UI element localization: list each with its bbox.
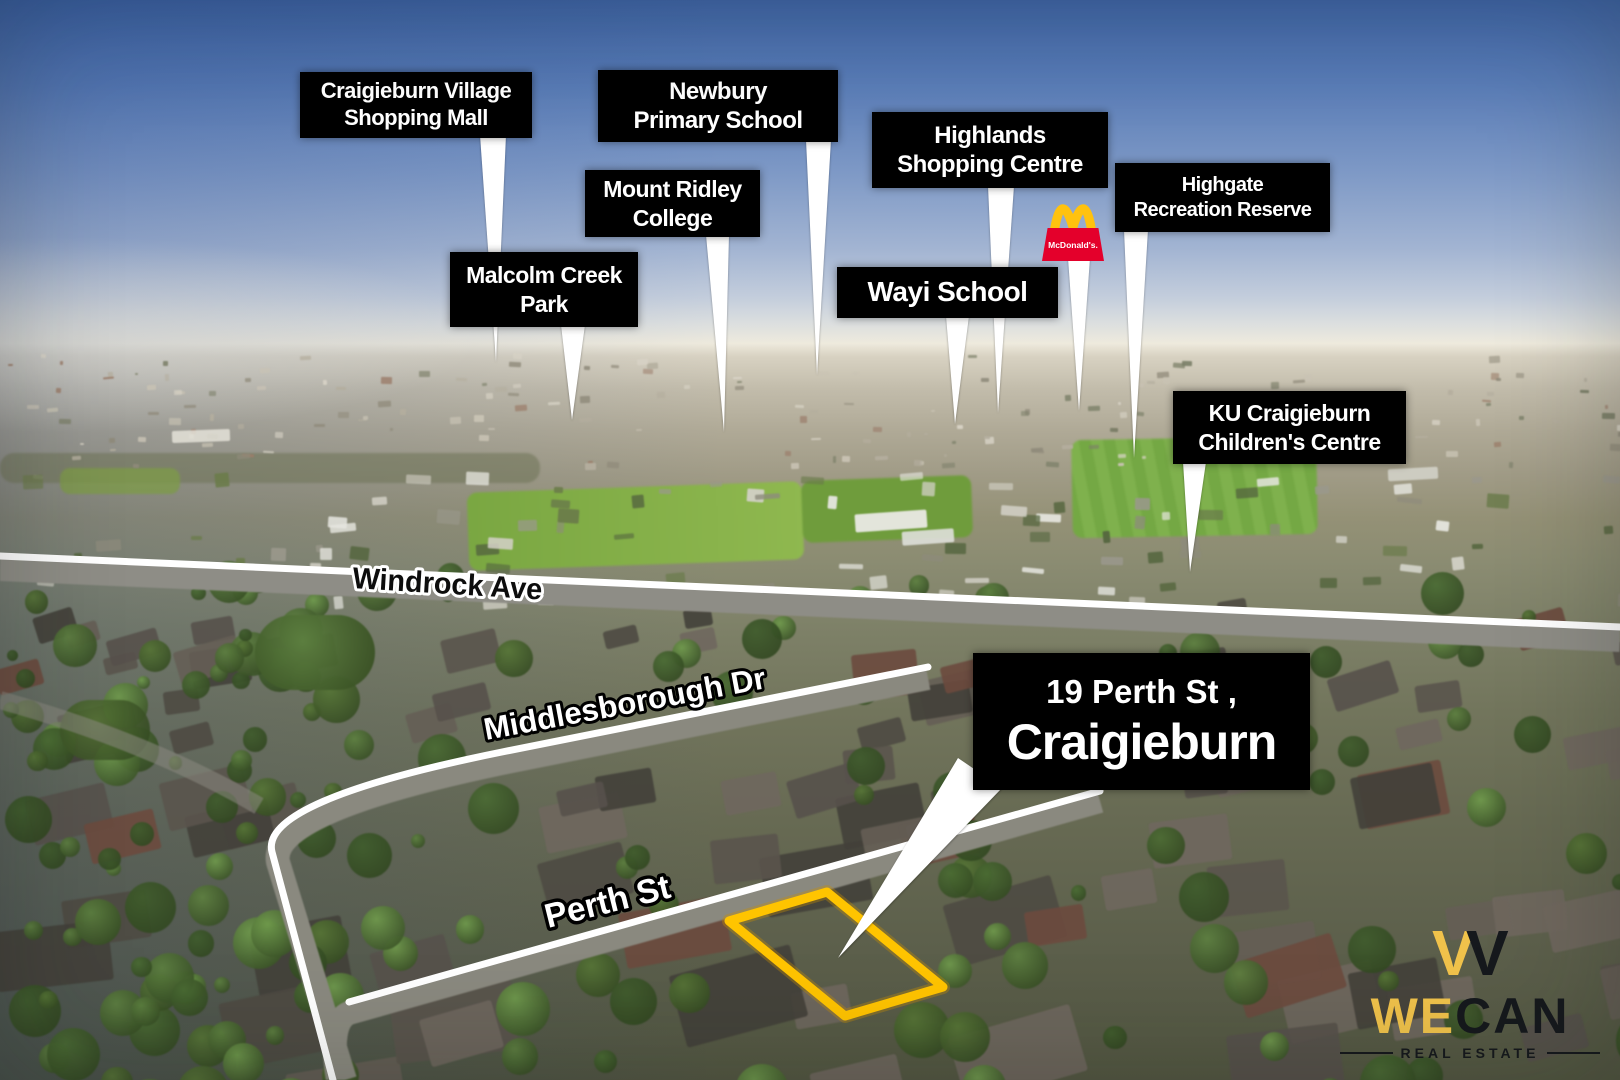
tagline-rule-left [1340,1052,1393,1054]
poi-line: KU Craigieburn [1209,399,1371,427]
poi-label-ku-craigieburn-childrens-centre: KU Craigieburn Children's Centre [1173,391,1406,464]
property-suburb: Craigieburn [1007,713,1277,771]
wecan-wordmark: WECAN [1340,991,1600,1041]
poi-line: Children's Centre [1198,428,1380,456]
property-address-label: 19 Perth St , Craigieburn [973,653,1310,790]
wedge-highgate [1124,230,1148,458]
poi-line: Highgate [1182,173,1264,197]
aerial-property-photo: Windrock Ave Middlesborough Dr Perth St … [0,0,1620,1080]
poi-line: Park [520,290,568,318]
poi-line: Mount Ridley [603,175,741,203]
poi-label-wayi-school: Wayi School [837,267,1058,318]
mcdonalds-sign-text: McDonald's. [1048,240,1098,250]
poi-label-craigieburn-village-shopping-mall: Craigieburn Village Shopping Mall [300,72,532,138]
wedge-craigieburn-village [480,135,506,362]
wedge-malcolm-creek [561,325,585,420]
wedge-mount-ridley [706,235,729,432]
poi-label-malcolm-creek-park: Malcolm Creek Park [450,252,638,327]
poi-line: Shopping Mall [344,105,488,132]
wecan-logo-mark-icon: V V [1432,921,1542,991]
logo-v-black: V [1466,921,1509,985]
poi-label-highlands-shopping-centre: Highlands Shopping Centre [872,112,1108,188]
wedge-newbury [806,140,831,375]
poi-line: College [633,204,713,232]
wecan-can: CAN [1455,988,1569,1044]
wecan-tagline-row: REAL ESTATE [1340,1045,1600,1061]
wedge-mcdonalds [1068,258,1090,411]
wecan-logo: V V WECAN REAL ESTATE [1340,903,1600,1068]
wecan-tagline: REAL ESTATE [1401,1045,1540,1061]
poi-line: Newbury [669,77,767,106]
poi-line: Recreation Reserve [1134,198,1312,222]
wedge-ku [1183,462,1206,572]
wecan-we: WE [1371,988,1456,1044]
poi-label-newbury-primary-school: Newbury Primary School [598,70,838,142]
wedge-wayi [946,316,969,424]
mcdonalds-sign-base: McDonald's. [1042,228,1104,261]
poi-line: Highlands [934,121,1046,150]
poi-line: Primary School [633,106,802,135]
poi-line: Craigieburn Village [321,78,512,105]
poi-line: Malcolm Creek [466,261,622,289]
poi-line: Wayi School [868,275,1028,309]
poi-label-highgate-recreation-reserve: Highgate Recreation Reserve [1115,163,1330,232]
poi-label-mount-ridley-college: Mount Ridley College [585,170,760,237]
tagline-rule-right [1547,1052,1600,1054]
poi-line: Shopping Centre [897,150,1083,179]
property-address-line: 19 Perth St , [1046,673,1237,711]
mcdonalds-sign: McDonald's. [1042,193,1104,261]
